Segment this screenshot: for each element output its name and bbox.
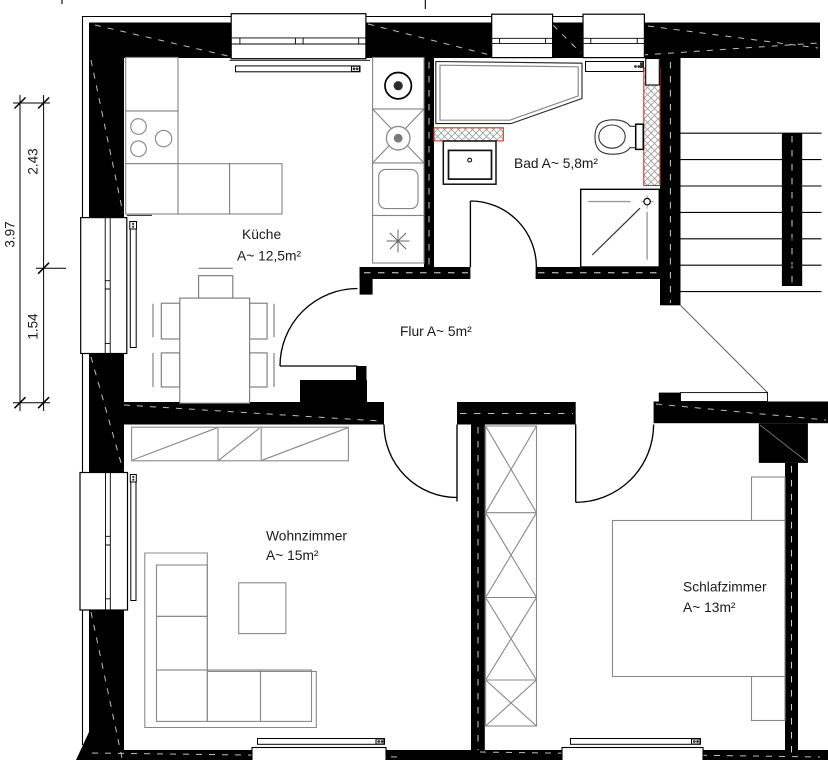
svg-text:Bad A~ 5,8m²: Bad A~ 5,8m² xyxy=(514,156,598,171)
svg-text:Küche: Küche xyxy=(242,227,281,242)
svg-text:Flur A~ 5m²: Flur A~ 5m² xyxy=(400,324,472,339)
svg-text:Schlafzimmer: Schlafzimmer xyxy=(683,580,767,595)
svg-text:A~ 13m²: A~ 13m² xyxy=(683,600,736,615)
svg-text:Wohnzimmer: Wohnzimmer xyxy=(266,529,347,544)
svg-text:3.97: 3.97 xyxy=(3,221,18,247)
svg-text:A~ 12,5m²: A~ 12,5m² xyxy=(237,249,301,264)
svg-text:2.43: 2.43 xyxy=(26,148,41,174)
svg-text:1.54: 1.54 xyxy=(26,313,41,340)
svg-text:A~ 15m²: A~ 15m² xyxy=(266,548,319,563)
